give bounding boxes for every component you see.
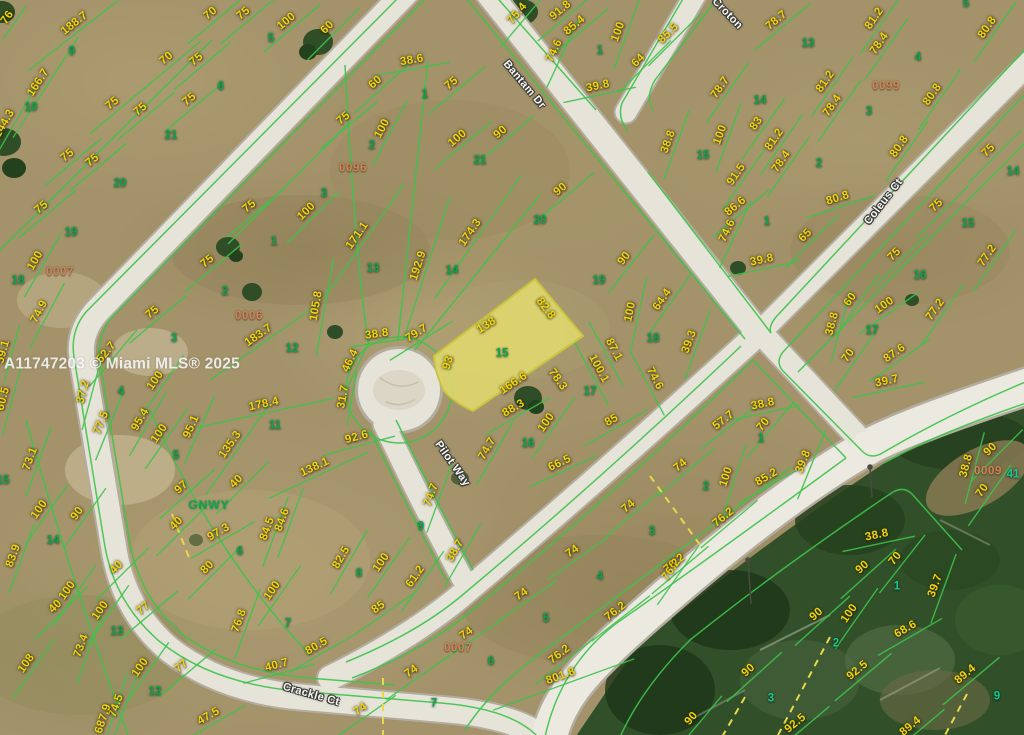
lot-number-label: 15 (962, 218, 975, 230)
parcel-dimension-label: 75 (886, 246, 904, 264)
parcel-dimension-label: 100 (610, 21, 628, 44)
parcel-dimension-label: 78.7 (764, 9, 789, 33)
lot-number-label: 2 (369, 140, 375, 152)
parcel-dimension-label: 75 (84, 152, 102, 169)
parcel-dimension-label: 80.8 (889, 134, 912, 160)
parcel-dimension-label: 38.8 (660, 129, 679, 155)
map-labels: 76188.797075100605166.77075610144.375757… (0, 0, 1024, 735)
parcel-dimension-label: 105.8 (309, 290, 326, 322)
parcel-dimension-label: 89.4 (898, 715, 923, 735)
parcel-dimension-label: 144.3 (0, 108, 18, 140)
parcel-dimension-label: 92.6 (344, 429, 370, 446)
lot-number-label: 5 (543, 613, 549, 625)
lot-number-label: 21 (474, 155, 487, 167)
lot-number-label: 6 (488, 656, 494, 668)
parcel-dimension-label: 74.7 (477, 436, 499, 462)
parcel-dimension-label: 68.6 (893, 619, 919, 641)
parcel-dimension-label: 40 (228, 473, 246, 491)
aerial-map-image[interactable]: 76188.797075100605166.77075610144.375757… (0, 0, 1024, 735)
lot-number-label: 21 (165, 130, 178, 142)
parcel-dimension-label: 83 (748, 115, 765, 133)
parcel-dimension-label: 100 (296, 201, 318, 223)
parcel-dimension-label: 74.6 (718, 218, 738, 244)
street-name-label: Bantam Dr (501, 59, 548, 111)
lot-number-label: 19 (593, 275, 606, 287)
parcel-dimension-label: 89.4 (953, 663, 978, 687)
parcel-dimension-label: 39.8 (749, 253, 774, 269)
parcel-dimension-label: 38.8 (365, 328, 390, 343)
lot-number-label: 20 (114, 178, 127, 190)
lot-number-label: 15 (0, 475, 9, 487)
lot-number-label: 4 (118, 386, 124, 398)
parcel-dimension-label: 100 (150, 422, 171, 445)
parcel-dimension-label: 70 (755, 416, 772, 434)
parcel-dimension-label: 70 (158, 50, 176, 67)
parcel-dimension-label: 80.8 (977, 15, 1000, 41)
parcel-dimension-label: 73.4 (73, 633, 92, 659)
lot-number-label: 18 (647, 333, 660, 345)
lot-number-label: 13 (802, 38, 815, 50)
parcel-dimension-label: 39.7 (874, 374, 899, 390)
parcel-dimension-label: 100 (146, 369, 167, 392)
parcel-dimension-label: 97 (173, 479, 191, 497)
parcel-dimension-label: 78.3 (545, 367, 568, 393)
parcel-dimension-label: 90 (982, 441, 1000, 459)
parcel-dimension-label: 75 (241, 198, 259, 215)
lot-number-label: 6 (237, 546, 243, 558)
parcel-dimension-label: 90 (492, 124, 510, 141)
lot-number-label: 7 (431, 698, 437, 710)
parcel-dimension-label: 85 (370, 599, 388, 616)
lot-number-label: 1 (271, 236, 277, 248)
parcel-dimension-label: 75 (132, 101, 150, 118)
lot-number-label: 20 (534, 215, 547, 227)
lot-number-label: 4 (915, 52, 921, 64)
parcel-dimension-label: 70 (887, 550, 904, 568)
parcel-dimension-label: 76.2 (547, 643, 573, 667)
lot-number-label: 2 (222, 286, 228, 298)
parcel-dimension-label: 100 (263, 579, 284, 602)
parcel-dimension-label: 93 (441, 355, 456, 371)
parcel-dimension-label: 74 (513, 586, 531, 603)
lot-number-label: 2 (816, 158, 822, 170)
parcel-dimension-label: 135.3 (218, 429, 245, 460)
parcel-dimension-label: 39.3 (681, 329, 700, 355)
parcel-dimension-label: 74 (403, 663, 421, 680)
parcel-dimension-label: 40 (108, 559, 126, 577)
lot-number-label: 14 (1007, 166, 1020, 178)
block-number-label: 0007 (444, 643, 472, 655)
lot-number-label: 1 (758, 433, 764, 445)
parcel-dimension-label: 38.8 (824, 311, 841, 337)
parcel-dimension-label: 38.6 (399, 53, 424, 68)
lot-number-label: 1 (894, 581, 900, 593)
lot-number-label: 1 (764, 216, 770, 228)
parcel-dimension-label: 100 (537, 411, 558, 434)
lot-number-label: 3 (768, 693, 774, 705)
parcel-dimension-label: 90 (808, 606, 826, 624)
lot-number-label: 2 (833, 638, 839, 650)
parcel-dimension-label: 76.8 (231, 608, 250, 634)
lot-number-label: 9 (994, 691, 1000, 703)
parcel-dimension-label: 188.7 (60, 10, 91, 38)
parcel-dimension-label: 174.3 (458, 217, 485, 248)
parcel-dimension-label: 171.1 (345, 220, 372, 251)
parcel-dimension-label: 78.7 (710, 75, 733, 101)
parcel-dimension-label: 97.3 (206, 522, 232, 544)
parcel-dimension-label: 100 (26, 249, 46, 272)
parcel-dimension-label: 75 (181, 91, 199, 108)
parcel-dimension-label: 90 (683, 710, 700, 728)
lot-number-label: 3 (866, 106, 872, 118)
parcel-dimension-label: 92.5 (783, 712, 808, 735)
block-number-label: 0099 (872, 81, 900, 93)
parcel-dimension-label: 85.5 (657, 22, 682, 47)
parcel-dimension-label: 91.8 (548, 0, 573, 23)
lot-number-label: 14 (754, 95, 767, 107)
parcel-dimension-label: 57.7 (711, 409, 737, 433)
parcel-dimension-label: 78.4 (869, 31, 892, 57)
lot-number-label: 13 (111, 626, 124, 638)
lot-number-label: 5 (268, 33, 274, 45)
parcel-dimension-label: 87.6 (882, 343, 908, 366)
lot-number-label: 1 (422, 89, 428, 101)
parcel-dimension-label: 47.5 (196, 706, 222, 728)
parcel-dimension-label: 100 (131, 656, 152, 679)
parcel-dimension-label: 39.7 (927, 573, 946, 599)
parcel-dimension-label: 70 (202, 5, 220, 22)
parcel-dimension-label: 60 (319, 19, 337, 37)
parcel-dimension-label: 90 (69, 505, 86, 523)
parcel-dimension-label: 38.8 (750, 397, 775, 413)
parcel-dimension-label: 85.2 (754, 467, 780, 489)
parcel-dimension-label: 100 (372, 551, 393, 574)
lot-number-label: 5 (963, 0, 969, 10)
parcel-dimension-label: 100.1 (586, 353, 610, 385)
lot-number-label: 19 (65, 227, 78, 239)
parcel-dimension-label: 75 (144, 304, 162, 321)
parcel-dimension-label: 100 (58, 579, 79, 602)
parcel-dimension-label: 75.4 (506, 1, 530, 26)
parcel-dimension-label: 90 (616, 250, 633, 268)
parcel-dimension-label: 76 (0, 9, 17, 27)
lot-number-label: 1 (597, 45, 603, 57)
parcel-dimension-label: 74.9 (29, 299, 50, 325)
parcel-dimension-label: 38.8 (864, 528, 889, 544)
parcel-dimension-label: 75 (188, 51, 206, 68)
parcel-dimension-label: 90 (740, 662, 758, 680)
parcel-dimension-label: 70 (840, 347, 857, 365)
parcel-dimension-label: 108 (17, 652, 38, 675)
parcel-dimension-label: 66.5 (547, 454, 573, 474)
parcel-dimension-label: 183.7 (243, 323, 274, 350)
parcel-dimension-label: 75 (335, 110, 353, 127)
lot-number-label: 3 (649, 526, 655, 538)
lot-number-label: 8 (356, 568, 362, 580)
street-name-label: Croton (710, 0, 745, 32)
parcel-dimension-label: 39.8 (585, 79, 610, 95)
parcel-dimension-label: 74.6 (643, 366, 664, 392)
parcel-dimension-label: 77.2 (925, 297, 948, 323)
parcel-dimension-label: 178.4 (248, 396, 280, 414)
parcel-dimension-label: 40.7 (264, 657, 290, 674)
parcel-dimension-label: 100 (30, 498, 51, 521)
parcel-dimension-label: 64 (630, 52, 648, 70)
parcel-dimension-label: 77.5 (92, 410, 112, 436)
parcel-dimension-label: 75 (33, 199, 51, 216)
lot-number-label: 17 (584, 386, 597, 398)
parcel-dimension-label: 78.4 (771, 149, 794, 175)
lot-number-label: 12 (149, 686, 162, 698)
parcel-dimension-label: 81.2 (864, 6, 887, 32)
lot-number-label: 17 (866, 325, 879, 337)
parcel-dimension-label: 80 (199, 559, 217, 577)
parcel-dimension-label: 77 (173, 658, 191, 675)
parcel-dimension-label: 75 (104, 95, 122, 112)
parcel-dimension-label: 87.1 (602, 337, 623, 363)
lot-number-label: 3 (321, 188, 327, 200)
parcel-dimension-label: 192.9 (409, 250, 429, 282)
parcel-dimension-label: 166.6 (498, 371, 530, 397)
parcel-dimension-label: 46.4 (341, 348, 361, 374)
parcel-dimension-label: 83.9 (5, 543, 24, 569)
parcel-dimension-label: 100 (873, 296, 896, 317)
parcel-dimension-label: 91.5 (726, 162, 749, 188)
parcel-dimension-label: 75 (59, 147, 77, 164)
parcel-dimension-label: 76.2 (661, 557, 684, 583)
parcel-dimension-label: 40 (168, 515, 186, 533)
parcel-dimension-label: 85 (603, 413, 620, 430)
lot-number-label: 14 (47, 535, 60, 547)
lot-number-label: 14 (446, 265, 459, 277)
parcel-dimension-label: 138 (475, 316, 498, 337)
parcel-dimension-label: 64.4 (652, 287, 675, 313)
street-name-label: Coleus Ct (863, 177, 905, 227)
parcel-dimension-label: 39.8 (794, 449, 814, 475)
parcel-dimension-label: 95.1 (182, 414, 202, 440)
parcel-dimension-label: 74 (564, 543, 582, 560)
parcel-dimension-label: 75 (199, 253, 217, 270)
parcel-dimension-label: 37.2 (75, 379, 92, 405)
block-number-label: 0009 (974, 466, 1002, 478)
parcel-dimension-label: 79.7 (404, 323, 430, 345)
lot-number-label: 7 (285, 618, 291, 630)
block-number-label: 0007 (46, 267, 74, 279)
parcel-dimension-label: 74 (352, 701, 370, 718)
lot-number-label: 41 (1007, 469, 1020, 481)
parcel-dimension-label: 86.6 (723, 195, 748, 219)
parcel-dimension-label: 88.3 (501, 398, 527, 420)
lot-number-label: 15 (496, 348, 509, 360)
lot-number-label: 16 (522, 438, 535, 450)
mls-watermark: A11747203 © Miami MLS® 2025 (4, 356, 240, 372)
block-number-label: 0096 (339, 163, 367, 175)
lot-number-label: 3 (171, 333, 177, 345)
parcel-dimension-label: 74.7 (423, 482, 442, 508)
lot-number-label: 16 (914, 270, 927, 282)
parcel-dimension-label: 74 (620, 498, 638, 515)
parcel-dimension-label: 31.7 (336, 384, 351, 409)
parcel-dimension-label: 60 (367, 74, 385, 92)
parcel-dimension-label: 61.2 (405, 564, 428, 590)
lot-number-label: 10 (25, 102, 38, 114)
parcel-dimension-label: 90 (552, 181, 570, 198)
parcel-dimension-label: 60 (842, 291, 859, 309)
parcel-dimension-label: 76.2 (603, 600, 629, 624)
parcel-dimension-label: 73.1 (22, 446, 41, 472)
lot-number-label: 9 (418, 521, 424, 533)
parcel-dimension-label: 75 (980, 142, 998, 160)
parcel-dimension-label: 90 (854, 559, 872, 577)
parcel-dimension-label: 82.8 (533, 296, 557, 322)
parcel-dimension-label: 80.8 (825, 190, 851, 208)
parcel-dimension-label: 100 (712, 124, 730, 147)
lot-number-label: 4 (597, 571, 603, 583)
parcel-dimension-label: 38.7 (445, 538, 467, 564)
parcel-dimension-label: 60.5 (0, 386, 13, 412)
lot-number-label: 2 (703, 481, 709, 493)
parcel-dimension-label: 100 (276, 11, 299, 33)
parcel-dimension-label: 75 (928, 197, 946, 215)
parcel-dimension-label: 75 (443, 75, 461, 92)
parcel-dimension-label: 76.2 (711, 506, 736, 530)
parcel-dimension-label: 687.9 (94, 703, 114, 735)
parcel-dimension-label: 100 (840, 602, 861, 625)
parcel-dimension-label: 100 (447, 128, 470, 150)
parcel-dimension-label: 100 (623, 301, 638, 323)
parcel-dimension-label: 75 (235, 5, 253, 22)
lot-number-label: 9 (69, 46, 75, 58)
parcel-dimension-label: 65 (797, 227, 815, 245)
greenway-label: GNWY (188, 499, 229, 511)
parcel-dimension-label: 801.8 (545, 666, 577, 687)
block-number-label: 0006 (235, 311, 263, 323)
parcel-dimension-label: 74.6 (545, 38, 565, 64)
parcel-dimension-label: 82.5 (331, 545, 353, 571)
parcel-dimension-label: 95.4 (130, 407, 152, 433)
street-name-label: Pilot Way (432, 439, 471, 488)
lot-number-label: 15 (697, 150, 710, 162)
parcel-dimension-label: 80.5 (304, 636, 330, 658)
parcel-dimension-label: 74 (672, 457, 690, 474)
parcel-dimension-label: 92.5 (845, 659, 870, 683)
parcel-dimension-label: 166.7 (26, 67, 52, 99)
parcel-dimension-label: 85.4 (562, 14, 587, 38)
lot-number-label: 13 (367, 263, 380, 275)
parcel-dimension-label: 100 (91, 599, 112, 622)
parcel-dimension-label: 100 (373, 117, 393, 140)
parcel-dimension-label: 40 (47, 598, 65, 616)
parcel-dimension-label: 138.1 (299, 456, 331, 479)
lot-number-label: 6 (218, 81, 224, 93)
lot-number-label: 12 (286, 343, 299, 355)
lot-number-label: 11 (269, 420, 281, 432)
parcel-dimension-label: 78.4 (822, 93, 845, 119)
street-name-label: Crackle Ct (281, 682, 340, 709)
parcel-dimension-label: 77.2 (977, 243, 1000, 269)
lot-number-label: 18 (12, 275, 25, 287)
parcel-dimension-label: 74 (458, 625, 476, 642)
parcel-dimension-label: 80.8 (922, 82, 945, 108)
lot-number-label: 5 (173, 450, 179, 462)
parcel-dimension-label: 77 (135, 600, 153, 617)
parcel-dimension-label: 100 (718, 466, 735, 489)
parcel-dimension-label: 70 (974, 482, 991, 500)
